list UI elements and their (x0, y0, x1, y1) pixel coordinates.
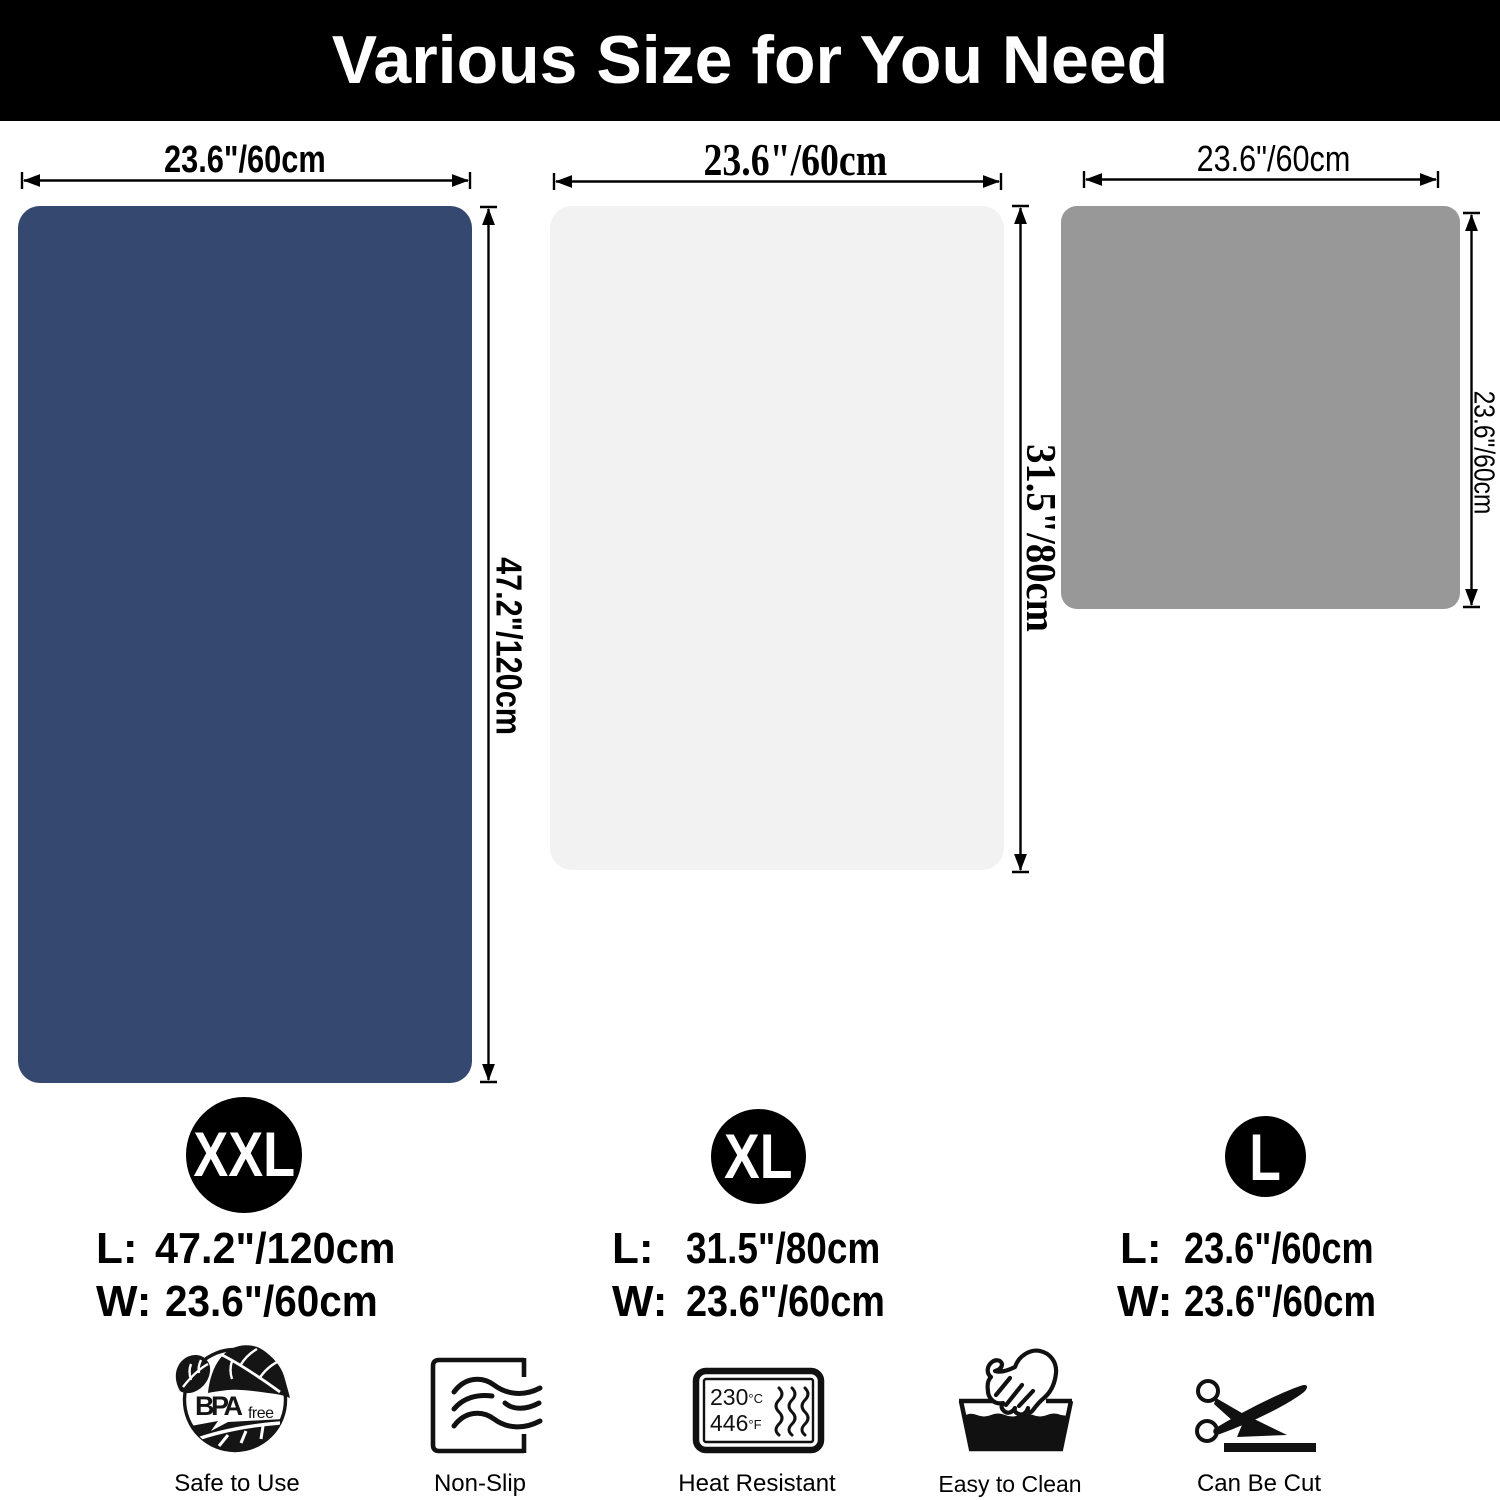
svg-text:free: free (248, 1405, 274, 1422)
svg-text:446°F: 446°F (710, 1410, 762, 1436)
svg-text:BPA: BPA (195, 1391, 243, 1421)
svg-text:230°C: 230°C (710, 1384, 763, 1410)
